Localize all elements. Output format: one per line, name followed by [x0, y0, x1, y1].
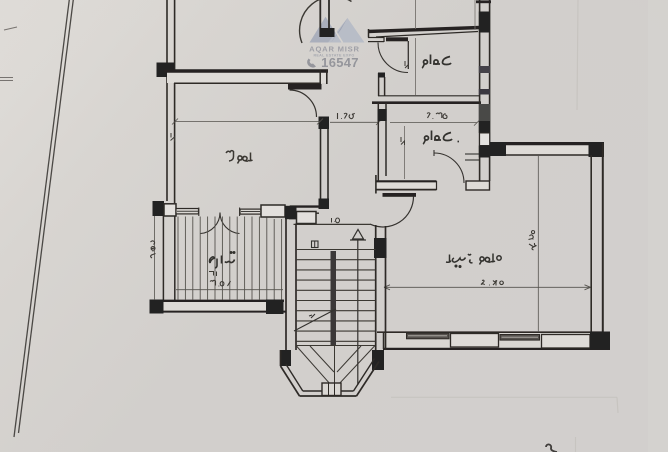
svg-text:AQAR MISR: AQAR MISR [309, 45, 360, 54]
svg-text:16547: 16547 [321, 55, 359, 70]
